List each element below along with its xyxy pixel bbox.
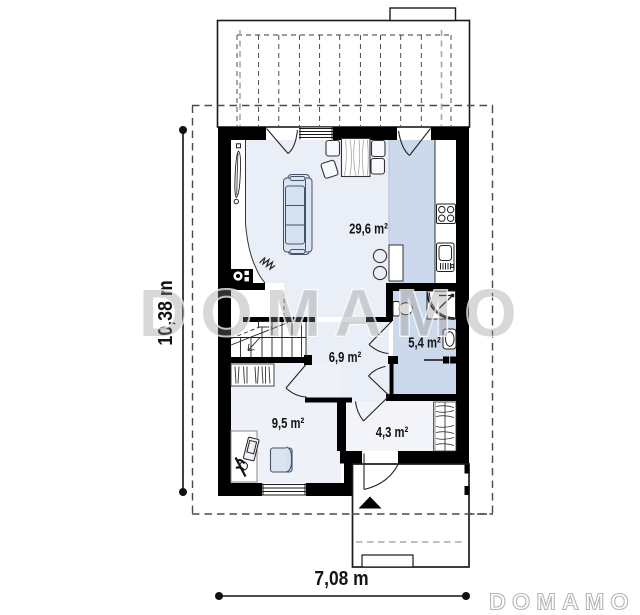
svg-text:29,6 m²: 29,6 m² — [349, 220, 388, 237]
svg-text:9,5 m²: 9,5 m² — [272, 414, 305, 431]
svg-text:DOMAMO: DOMAMO — [139, 276, 530, 351]
svg-text:DOMAMO: DOMAMO — [489, 589, 635, 615]
svg-text:4,3 m²: 4,3 m² — [376, 423, 409, 440]
svg-text:7,08 m: 7,08 m — [314, 567, 368, 589]
